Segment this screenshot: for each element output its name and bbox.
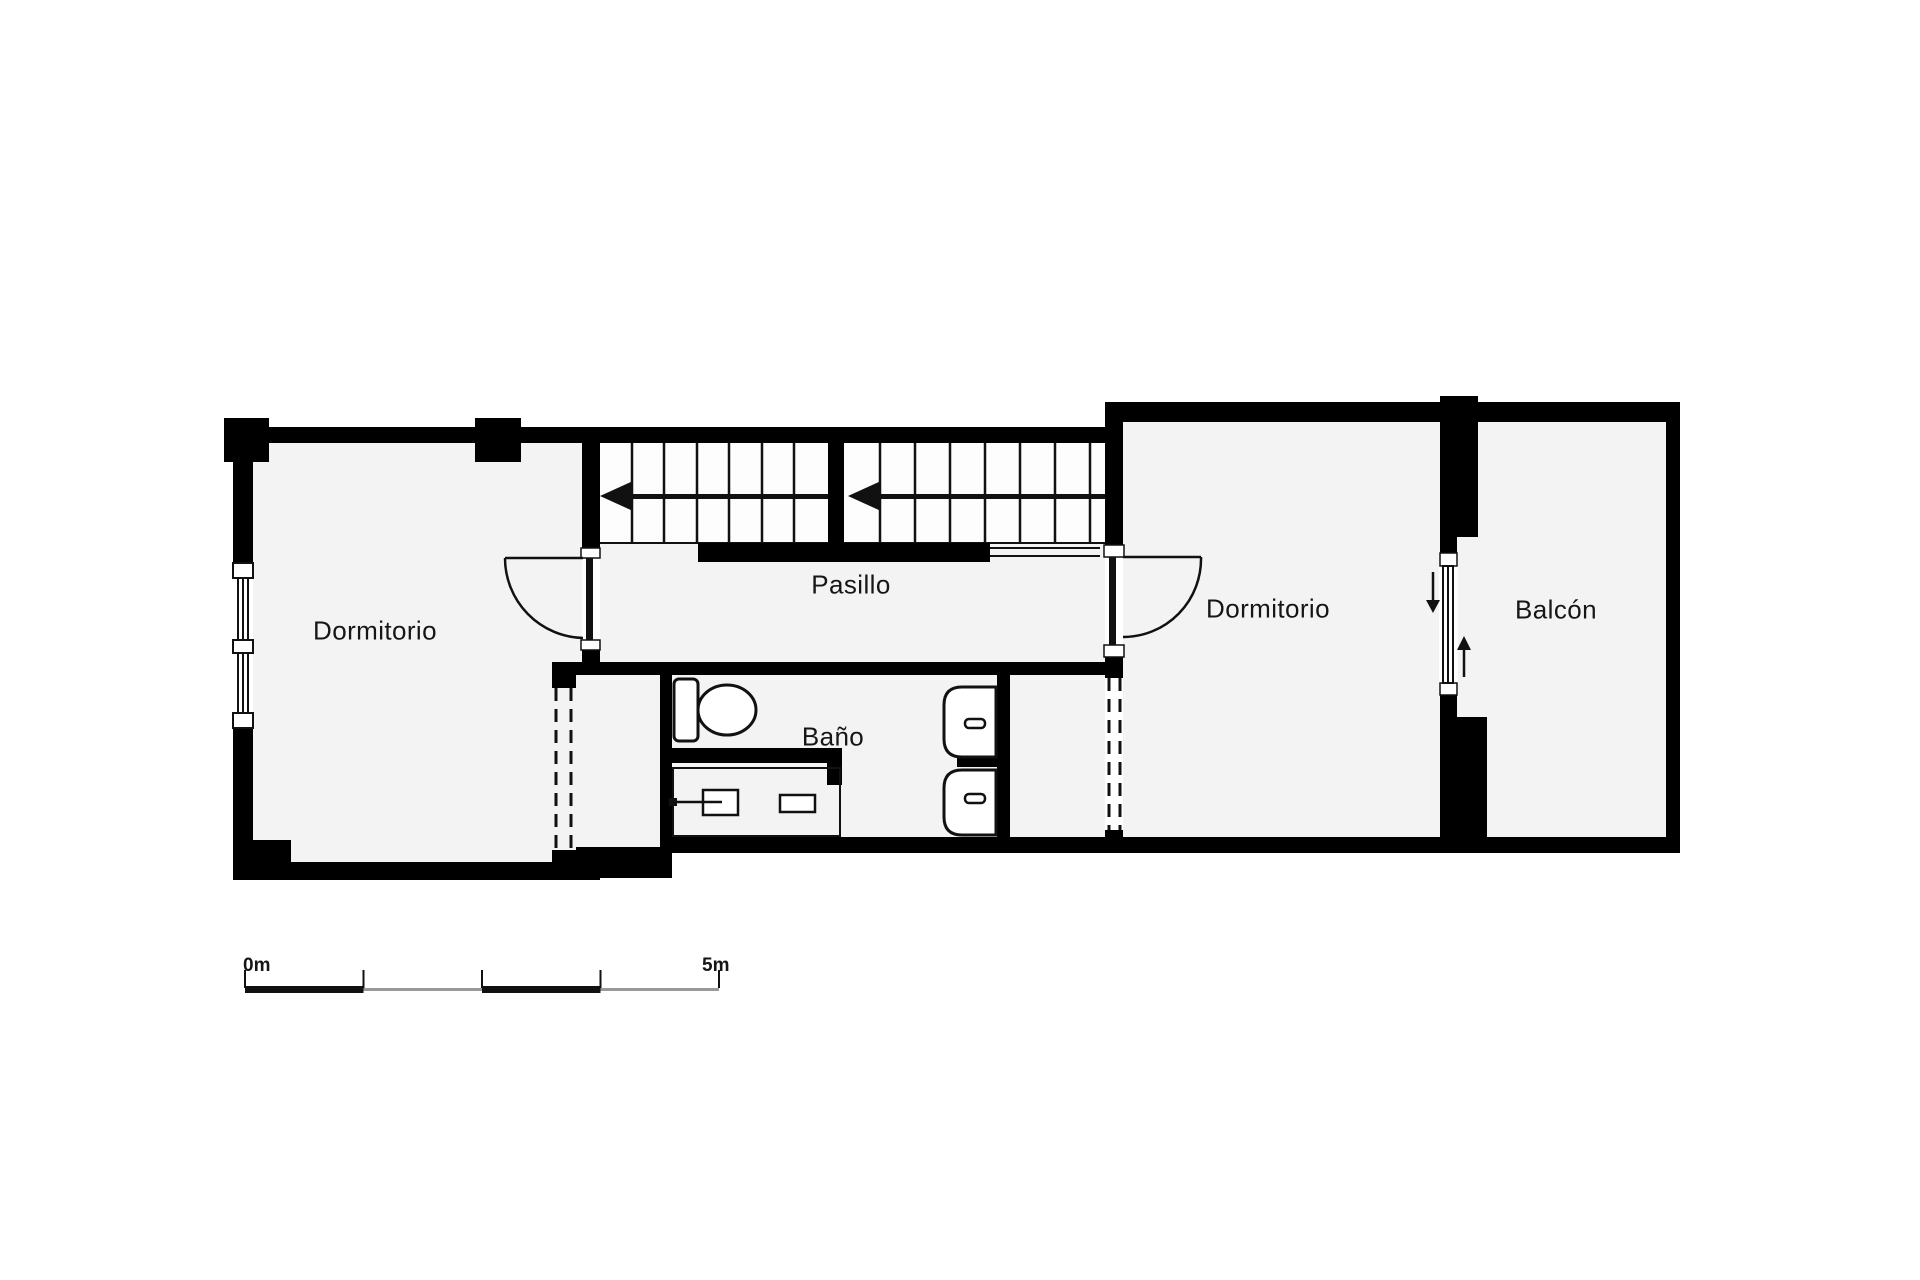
wardrobe-left-top-block — [552, 662, 576, 688]
window-left-wall — [233, 563, 253, 728]
scale-bar — [245, 970, 719, 993]
door-jamb — [1104, 545, 1124, 557]
door-jamb — [581, 548, 600, 558]
wall-balcon-divider-bump — [1440, 396, 1478, 402]
wall-stair-left-upper — [582, 443, 600, 548]
wall-top-left-section — [233, 427, 1123, 443]
room-label-dormitorio-left: Dormitorio — [313, 616, 437, 647]
toilet-icon — [674, 679, 756, 741]
floor-plan-drawing — [0, 0, 1920, 1280]
wall-bottom-right-section — [660, 837, 1680, 853]
stair-flight-right — [844, 443, 1105, 543]
room-label-bano: Baño — [802, 722, 864, 753]
wall-top-right-section — [1105, 402, 1680, 422]
wardrobe-right-bottom-block — [1105, 830, 1123, 853]
door-jamb — [1440, 553, 1457, 566]
scale-segment-black — [245, 986, 364, 993]
scale-segment-gray — [364, 988, 483, 991]
wall-dorm-right-west-upper — [1105, 402, 1123, 545]
door-jamb — [581, 640, 600, 650]
door-leaf — [1109, 557, 1116, 645]
pillar-bottom-left — [233, 840, 291, 880]
scale-label-start: 0m — [243, 955, 270, 977]
door-jamb — [1440, 683, 1457, 695]
floor-plan: Dormitorio Pasillo Baño Dormitorio Balcó… — [0, 0, 1920, 1280]
floor-dormitorio-right — [1123, 422, 1440, 837]
floor-balcon — [1456, 422, 1666, 837]
pillar-mid-top — [475, 418, 521, 462]
window-jamb — [233, 640, 253, 653]
room-label-balcon: Balcón — [1515, 595, 1597, 626]
door-jamb — [1104, 645, 1124, 657]
wall-sink-top-icon — [944, 687, 996, 757]
wall-stair-divider — [828, 443, 844, 544]
soap-tray-icon — [780, 795, 815, 812]
wardrobe-left-bottom-block — [552, 850, 576, 863]
wall-under-stairs — [698, 543, 990, 562]
door-leaf — [586, 558, 593, 640]
scale-label-end: 5m — [702, 955, 729, 977]
wall-balcon-divider-lower — [1440, 717, 1487, 853]
floor-dormitorio-left — [253, 443, 582, 862]
scale-segment-black — [482, 986, 601, 993]
wall-wardrobe-bano-divider — [660, 675, 672, 850]
wall-balcon-divider-lower-neck — [1440, 695, 1457, 717]
wall-dorm-right-west-pillar — [1105, 657, 1123, 678]
staircase — [600, 443, 1105, 556]
wall-balcon-divider-neck — [1440, 537, 1457, 553]
wall-sink-bottom-icon — [944, 770, 996, 835]
room-label-pasillo: Pasillo — [811, 570, 890, 601]
scale-bar-ticks — [245, 970, 719, 988]
window-jamb — [233, 713, 253, 728]
window-jamb — [233, 563, 253, 578]
room-label-dormitorio-right: Dormitorio — [1206, 594, 1330, 625]
floor-wardrobe-left — [576, 675, 660, 847]
wall-bottom-step — [576, 847, 672, 878]
wall-bano-top — [552, 662, 1107, 675]
wall-balcon-divider-upper — [1440, 402, 1478, 537]
scale-segment-gray — [601, 988, 720, 991]
wall-balcon-right — [1666, 402, 1680, 853]
wardrobe-front-right — [1109, 678, 1120, 830]
